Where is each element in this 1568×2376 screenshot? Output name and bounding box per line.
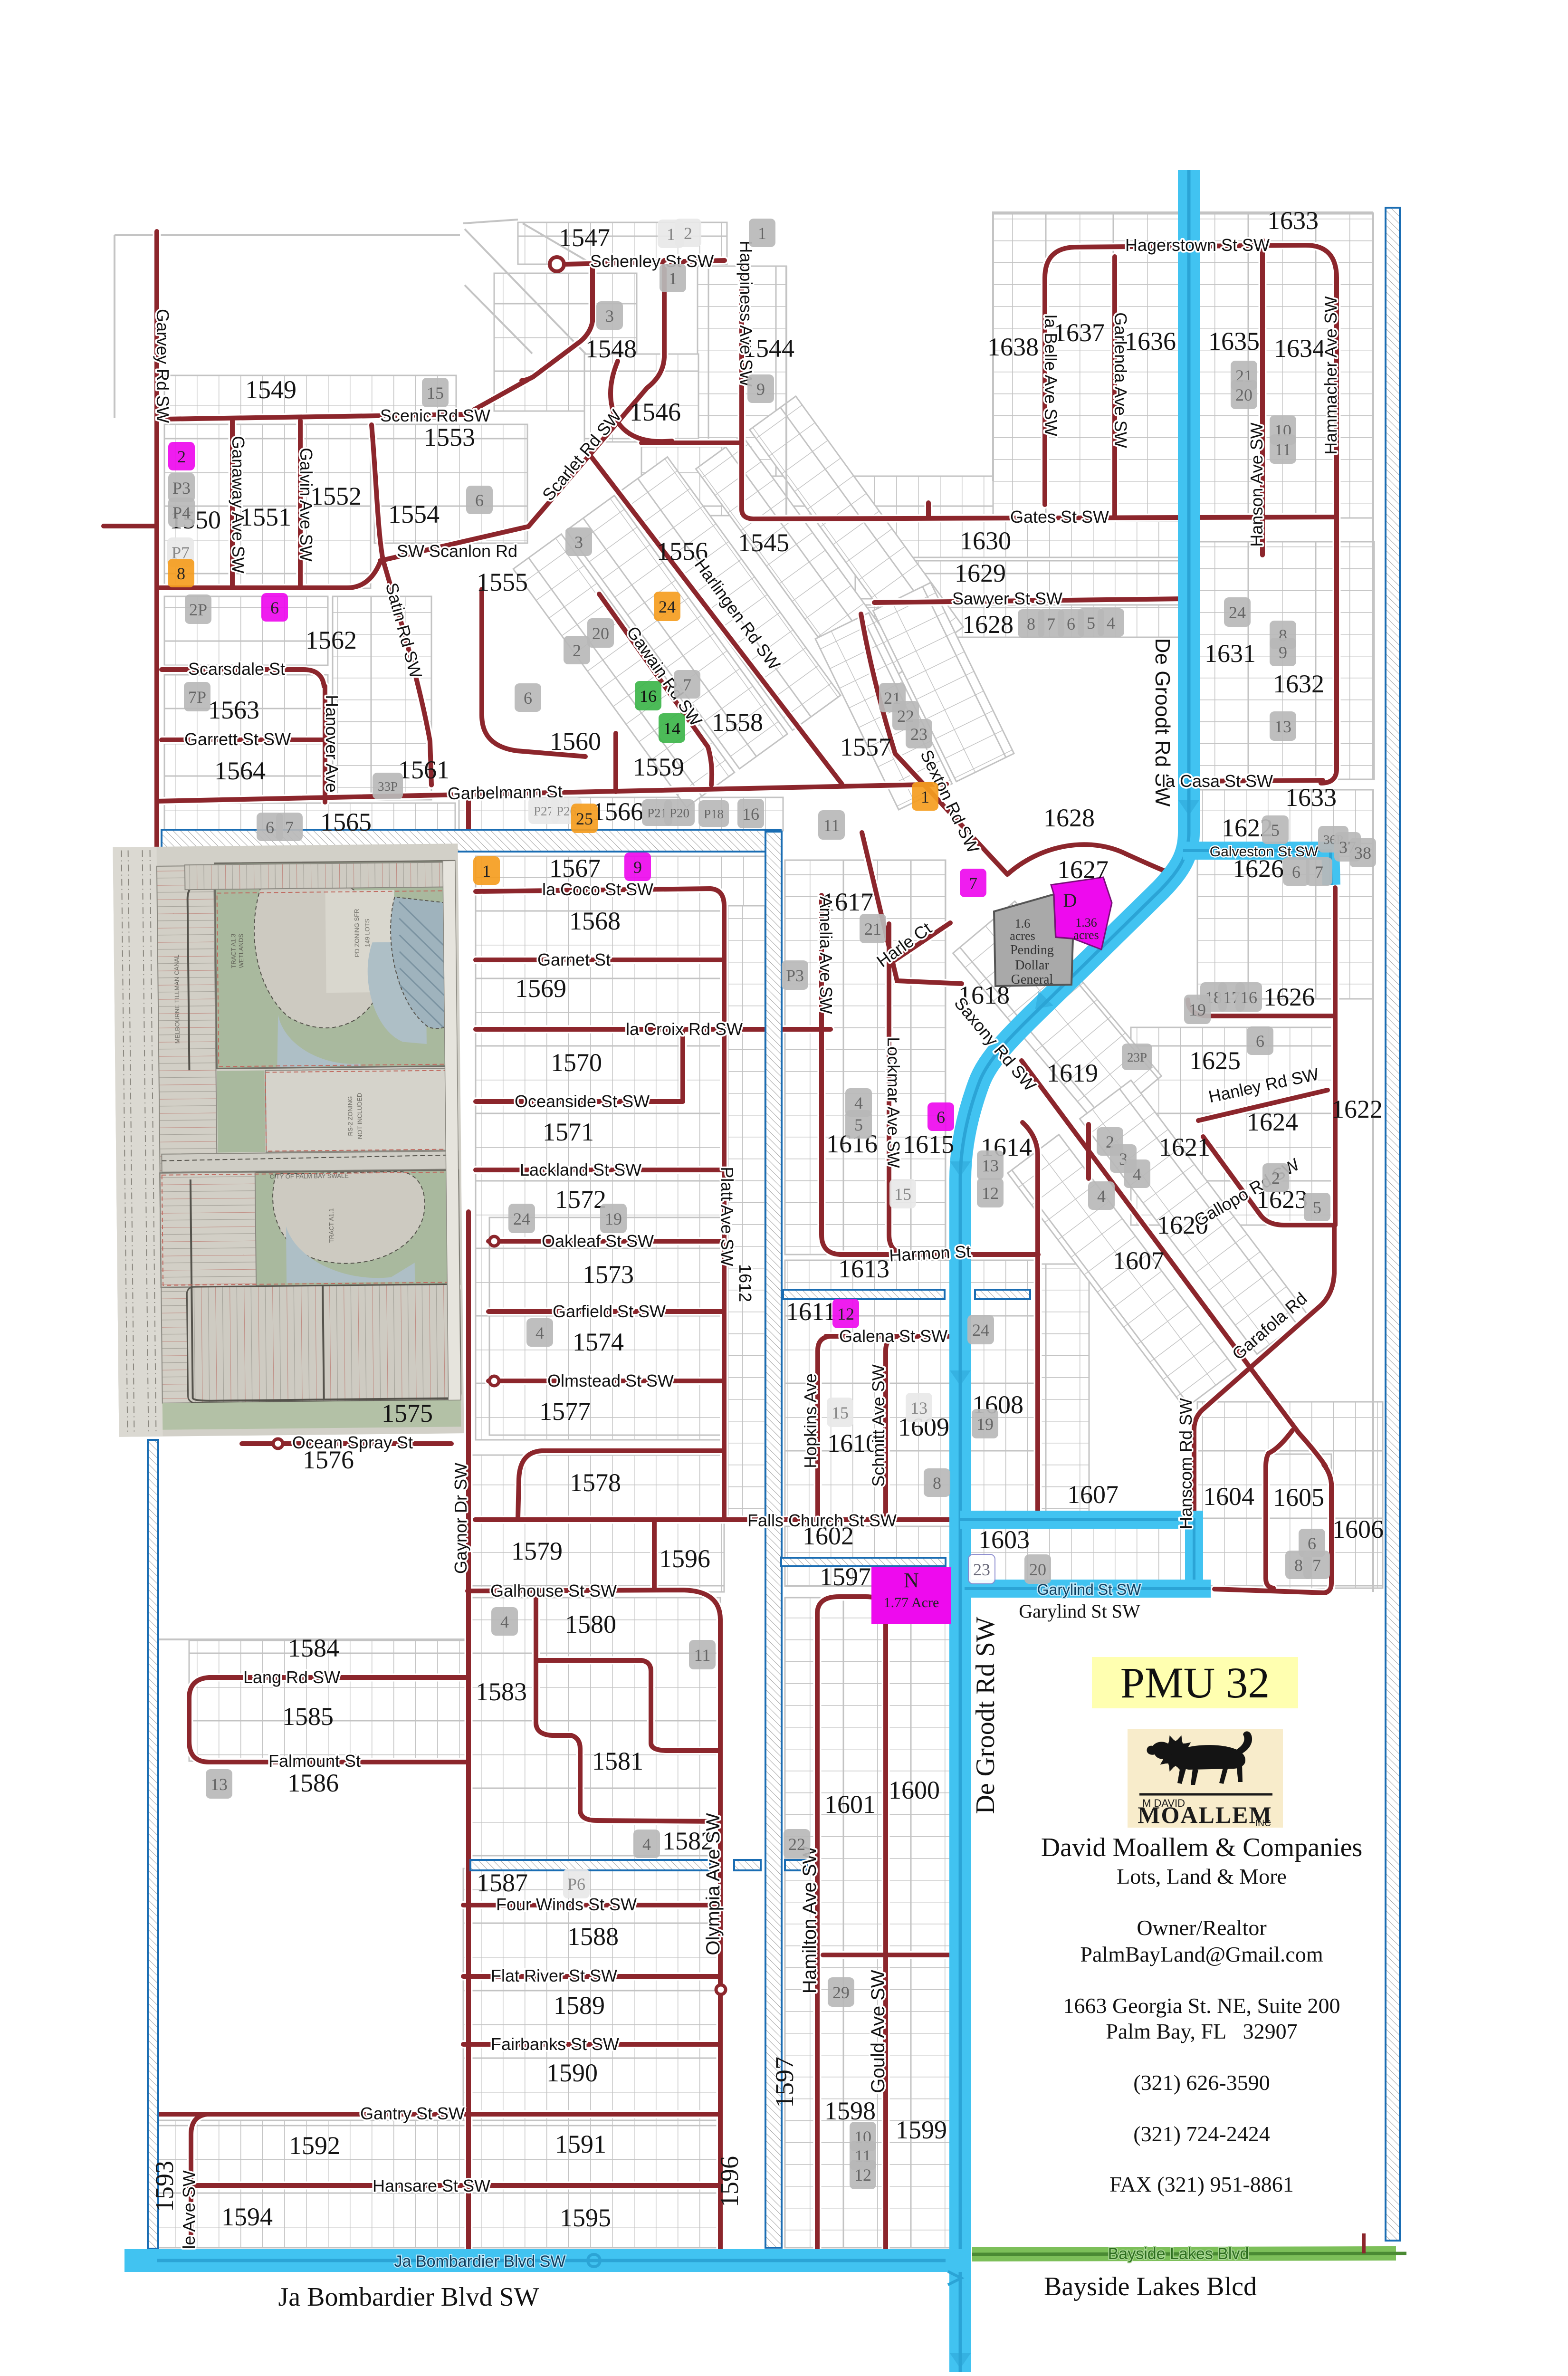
svg-text:Happiness Ave SW: Happiness Ave SW — [736, 240, 756, 387]
svg-text:1555: 1555 — [477, 568, 528, 596]
svg-text:Lockmar Ave SW: Lockmar Ave SW — [884, 1037, 903, 1168]
svg-text:Dollar: Dollar — [1015, 958, 1049, 973]
svg-text:1594: 1594 — [221, 2203, 273, 2231]
svg-text:1607: 1607 — [1067, 1480, 1119, 1509]
svg-text:1567: 1567 — [549, 854, 601, 882]
svg-text:Ganaway Ave SW: Ganaway Ave SW — [229, 436, 248, 573]
svg-text:1607: 1607 — [1113, 1246, 1164, 1275]
svg-text:la Belle Ave SW: la Belle Ave SW — [1041, 315, 1061, 436]
svg-text:1595: 1595 — [560, 2204, 611, 2232]
svg-text:1579: 1579 — [511, 1537, 563, 1565]
svg-text:1583: 1583 — [476, 1677, 527, 1706]
svg-text:(321) 626-3590: (321) 626-3590 — [1133, 2070, 1270, 2095]
svg-text:6: 6 — [1256, 1032, 1264, 1051]
svg-text:1.77 Acre: 1.77 Acre — [884, 1595, 939, 1610]
svg-text:1574: 1574 — [573, 1328, 624, 1356]
svg-text:11: 11 — [823, 816, 840, 835]
svg-text:1548: 1548 — [585, 335, 637, 363]
svg-text:D: D — [1063, 890, 1077, 911]
svg-text:1572: 1572 — [555, 1185, 606, 1214]
svg-text:P3: P3 — [172, 479, 191, 498]
svg-text:Hammacher Ave SW: Hammacher Ave SW — [1321, 296, 1340, 454]
svg-text:1637: 1637 — [1053, 318, 1105, 347]
svg-text:INC: INC — [1255, 1819, 1271, 1829]
svg-text:6: 6 — [1308, 1534, 1316, 1553]
svg-text:1593: 1593 — [150, 2161, 179, 2212]
svg-text:Olmstead St SW: Olmstead St SW — [547, 1371, 674, 1390]
svg-text:1604: 1604 — [1203, 1482, 1254, 1511]
svg-text:1588: 1588 — [567, 1922, 619, 1951]
svg-text:Hagerstown St SW: Hagerstown St SW — [1125, 235, 1270, 255]
svg-text:5: 5 — [1087, 613, 1095, 632]
svg-text:CITY OF PALM BAY SWALE: CITY OF PALM BAY SWALE — [270, 1172, 349, 1180]
svg-text:Garfield St SW: Garfield St SW — [553, 1302, 666, 1321]
svg-text:TRACT A1.3: TRACT A1.3 — [229, 934, 237, 968]
svg-text:1569: 1569 — [515, 974, 566, 1003]
svg-text:2: 2 — [573, 641, 581, 660]
svg-text:7: 7 — [683, 675, 691, 694]
svg-text:1629: 1629 — [955, 559, 1006, 587]
svg-text:General: General — [1011, 972, 1053, 987]
svg-text:1598: 1598 — [824, 2097, 876, 2125]
svg-text:13: 13 — [1274, 717, 1291, 736]
svg-text:Amelia Ave SW: Amelia Ave SW — [816, 896, 836, 1014]
svg-text:19: 19 — [605, 1209, 622, 1228]
svg-text:Platt Ave SW: Platt Ave SW — [717, 1167, 737, 1266]
svg-text:Galvin Ave SW: Galvin Ave SW — [296, 448, 316, 561]
svg-text:P21: P21 — [647, 806, 667, 820]
svg-text:1601: 1601 — [824, 1790, 876, 1819]
svg-text:1: 1 — [667, 225, 675, 244]
svg-text:Garlenda Ave SW: Garlenda Ave SW — [1111, 312, 1130, 448]
svg-text:5: 5 — [854, 1115, 863, 1134]
svg-text:13: 13 — [210, 1775, 228, 1794]
svg-text:1559: 1559 — [633, 753, 684, 781]
svg-text:1626: 1626 — [1263, 983, 1315, 1011]
svg-text:1565: 1565 — [320, 808, 372, 836]
svg-text:1562: 1562 — [306, 626, 357, 654]
svg-text:P27: P27 — [534, 804, 554, 818]
svg-text:13: 13 — [982, 1156, 999, 1175]
svg-text:Owner/Realtor: Owner/Realtor — [1137, 1916, 1266, 1940]
svg-text:1558: 1558 — [712, 708, 763, 737]
svg-text:9: 9 — [756, 380, 765, 399]
svg-text:1.36: 1.36 — [1075, 916, 1097, 929]
svg-text:1590: 1590 — [546, 2059, 598, 2087]
svg-text:23: 23 — [910, 725, 927, 744]
svg-text:Galena St SW: Galena St SW — [839, 1326, 947, 1346]
svg-text:PMU 32: PMU 32 — [1120, 1658, 1270, 1707]
svg-text:FAX (321) 951-8861: FAX (321) 951-8861 — [1109, 2172, 1294, 2196]
svg-text:Oakleaf St SW: Oakleaf St SW — [542, 1231, 654, 1251]
svg-text:PalmBayLand@Gmail.com: PalmBayLand@Gmail.com — [1080, 1942, 1323, 1966]
svg-text:8: 8 — [177, 564, 185, 583]
svg-text:Garrett St SW: Garrett St SW — [184, 729, 291, 749]
svg-text:6: 6 — [937, 1108, 945, 1127]
svg-text:1: 1 — [669, 269, 677, 288]
svg-text:5: 5 — [1271, 821, 1280, 840]
svg-text:1633: 1633 — [1267, 206, 1319, 235]
svg-text:24: 24 — [972, 1321, 989, 1340]
svg-text:3: 3 — [574, 533, 583, 552]
svg-text:1630: 1630 — [960, 527, 1011, 555]
svg-text:Hamilton Ave SW: Hamilton Ave SW — [799, 1846, 820, 1994]
svg-text:1635: 1635 — [1208, 327, 1260, 355]
svg-text:24: 24 — [659, 597, 676, 616]
svg-text:2P: 2P — [189, 600, 207, 619]
svg-text:Hanson Ave SW: Hanson Ave SW — [1247, 422, 1266, 546]
svg-text:1581: 1581 — [592, 1747, 643, 1775]
svg-text:1627: 1627 — [1057, 855, 1109, 884]
svg-text:19: 19 — [976, 1415, 994, 1434]
svg-text:1553: 1553 — [424, 423, 475, 451]
svg-text:16: 16 — [742, 805, 759, 824]
svg-text:2: 2 — [1272, 1169, 1280, 1188]
svg-text:11: 11 — [694, 1646, 711, 1665]
svg-text:1605: 1605 — [1273, 1483, 1324, 1512]
svg-text:4: 4 — [854, 1093, 863, 1112]
svg-text:7: 7 — [969, 874, 977, 893]
svg-text:P4: P4 — [172, 503, 191, 522]
svg-text:acres: acres — [1010, 929, 1035, 943]
svg-text:Gates St SW: Gates St SW — [1010, 507, 1109, 527]
svg-text:1603: 1603 — [978, 1525, 1030, 1554]
svg-text:1564: 1564 — [214, 757, 266, 785]
svg-text:7: 7 — [285, 818, 294, 837]
svg-text:2: 2 — [684, 224, 692, 243]
svg-text:1619: 1619 — [1047, 1059, 1098, 1087]
svg-text:Flat River St SW: Flat River St SW — [491, 1966, 617, 1985]
svg-text:Falls Church St SW: Falls Church St SW — [747, 1511, 897, 1530]
svg-text:19: 19 — [1189, 1000, 1206, 1019]
svg-text:1573: 1573 — [583, 1260, 634, 1289]
svg-text:la Coco St SW: la Coco St SW — [542, 880, 653, 899]
svg-text:Sawyer St SW: Sawyer St SW — [952, 589, 1062, 608]
svg-text:De Groodt Rd SW: De Groodt Rd SW — [971, 1617, 1000, 1814]
svg-text:David Moallem & Companies: David Moallem & Companies — [1041, 1833, 1363, 1862]
svg-text:16: 16 — [1240, 988, 1257, 1007]
svg-text:Garnet St: Garnet St — [537, 950, 611, 969]
svg-text:1578: 1578 — [570, 1468, 621, 1497]
svg-text:4: 4 — [1133, 1165, 1141, 1184]
svg-text:Olympia Ave SW: Olympia Ave SW — [703, 1813, 724, 1955]
svg-text:9: 9 — [1279, 643, 1287, 662]
svg-text:1606: 1606 — [1332, 1515, 1384, 1543]
svg-text:1577: 1577 — [539, 1397, 591, 1426]
svg-text:1580: 1580 — [565, 1610, 616, 1638]
svg-text:1563: 1563 — [208, 696, 259, 724]
svg-text:1585: 1585 — [282, 1702, 334, 1731]
svg-text:14: 14 — [663, 719, 680, 738]
svg-text:TRACT A1.1: TRACT A1.1 — [327, 1208, 335, 1243]
svg-text:13: 13 — [910, 1399, 927, 1418]
svg-text:20: 20 — [592, 624, 609, 643]
svg-text:1557: 1557 — [840, 733, 891, 761]
svg-text:Pending: Pending — [1010, 943, 1054, 958]
svg-text:1622: 1622 — [1331, 1095, 1383, 1123]
svg-text:1612: 1612 — [736, 1264, 755, 1302]
svg-text:15: 15 — [427, 383, 444, 402]
svg-text:1554: 1554 — [388, 500, 440, 528]
svg-text:1634: 1634 — [1274, 334, 1325, 363]
svg-text:1636: 1636 — [1125, 327, 1176, 355]
svg-text:25: 25 — [576, 809, 593, 828]
svg-text:5: 5 — [1313, 1198, 1321, 1217]
svg-text:1611: 1611 — [786, 1297, 836, 1326]
svg-text:Schenley St SW: Schenley St SW — [590, 251, 714, 271]
svg-text:1615: 1615 — [903, 1130, 954, 1159]
svg-text:23P: 23P — [1127, 1050, 1147, 1064]
svg-text:PD ZONING SFR: PD ZONING SFR — [353, 909, 361, 957]
svg-text:4: 4 — [500, 1612, 509, 1631]
svg-text:1547: 1547 — [559, 223, 610, 252]
svg-text:8: 8 — [933, 1474, 941, 1493]
svg-text:6: 6 — [1292, 862, 1300, 881]
svg-text:29: 29 — [832, 1983, 850, 2002]
svg-text:MELBOURNE TILLMAN CANAL: MELBOURNE TILLMAN CANAL — [173, 955, 181, 1044]
svg-text:Hopkins Ave: Hopkins Ave — [801, 1373, 820, 1468]
svg-text:8: 8 — [1294, 1556, 1303, 1575]
svg-text:1586: 1586 — [287, 1769, 339, 1797]
svg-text:4: 4 — [535, 1323, 544, 1342]
svg-text:1597: 1597 — [820, 1562, 871, 1591]
svg-text:1: 1 — [482, 862, 491, 881]
svg-text:1560: 1560 — [550, 727, 601, 756]
svg-text:20: 20 — [1235, 385, 1252, 404]
svg-text:1628: 1628 — [1043, 804, 1095, 832]
svg-text:WETLANDS: WETLANDS — [237, 934, 245, 968]
svg-text:Garylind St SW: Garylind St SW — [1037, 1581, 1142, 1598]
svg-text:Galhouse St SW: Galhouse St SW — [490, 1581, 617, 1600]
svg-text:1632: 1632 — [1273, 670, 1324, 698]
svg-text:22: 22 — [788, 1835, 805, 1854]
svg-text:1592: 1592 — [289, 2131, 340, 2160]
svg-text:Palm Bay, FL 32907: Palm Bay, FL 32907 — [1106, 2019, 1297, 2043]
svg-text:7: 7 — [1315, 862, 1323, 881]
svg-text:1663 Georgia St. NE, Suite 200: 1663 Georgia St. NE, Suite 200 — [1063, 1993, 1340, 2018]
svg-text:7: 7 — [1047, 614, 1055, 633]
svg-text:7: 7 — [1312, 1556, 1321, 1575]
svg-text:3: 3 — [605, 307, 614, 326]
svg-text:4: 4 — [1107, 613, 1115, 632]
svg-text:6: 6 — [270, 598, 279, 617]
svg-text:6: 6 — [475, 491, 484, 510]
svg-text:24: 24 — [513, 1209, 530, 1228]
svg-text:P18: P18 — [704, 807, 724, 821]
svg-text:Hanscom Rd SW: Hanscom Rd SW — [1176, 1398, 1195, 1529]
svg-text:1: 1 — [921, 787, 929, 806]
svg-text:1570: 1570 — [551, 1048, 602, 1077]
svg-text:1597: 1597 — [770, 2057, 799, 2108]
svg-text:23: 23 — [973, 1560, 990, 1579]
svg-text:149 LOTS: 149 LOTS — [363, 919, 371, 947]
svg-text:1587: 1587 — [477, 1868, 528, 1897]
svg-text:1599: 1599 — [896, 2116, 947, 2144]
svg-text:15: 15 — [894, 1185, 911, 1204]
svg-text:1.6: 1.6 — [1015, 917, 1031, 930]
svg-text:9: 9 — [633, 858, 642, 877]
svg-text:Oceanside St SW: Oceanside St SW — [515, 1092, 650, 1111]
svg-text:Ja Bombardier Blvd SW: Ja Bombardier Blvd SW — [394, 2252, 566, 2271]
svg-text:acres: acres — [1073, 928, 1099, 942]
svg-text:1568: 1568 — [569, 907, 621, 935]
svg-text:33P: 33P — [378, 779, 398, 794]
svg-text:1591: 1591 — [555, 2130, 606, 2158]
svg-text:la Casa St SW: la Casa St SW — [1162, 771, 1273, 791]
svg-text:N: N — [904, 1569, 919, 1592]
svg-text:Gantry St SW: Gantry St SW — [360, 2104, 465, 2123]
svg-text:1638: 1638 — [987, 333, 1039, 361]
svg-text:Garylind St SW: Garylind St SW — [1019, 1600, 1140, 1622]
svg-text:NOT INCLUDED: NOT INCLUDED — [356, 1093, 363, 1139]
svg-text:P3: P3 — [786, 966, 804, 985]
svg-text:15: 15 — [832, 1403, 849, 1422]
svg-text:6: 6 — [266, 818, 274, 837]
svg-text:Lots, Land & More: Lots, Land & More — [1117, 1864, 1287, 1888]
svg-text:Bayside Lakes Blcd: Bayside Lakes Blcd — [1044, 2272, 1257, 2301]
svg-text:1561: 1561 — [398, 756, 449, 784]
svg-text:Lackland St SW: Lackland St SW — [520, 1160, 641, 1179]
svg-text:1633: 1633 — [1285, 783, 1337, 812]
svg-text:38: 38 — [1354, 843, 1371, 862]
svg-text:Hanover Ave: Hanover Ave — [322, 695, 342, 792]
svg-text:24: 24 — [1229, 603, 1246, 622]
svg-text:Scenic Rd SW: Scenic Rd SW — [380, 406, 490, 425]
svg-text:1596: 1596 — [659, 1544, 710, 1573]
svg-text:11: 11 — [1275, 440, 1291, 459]
svg-text:1628: 1628 — [962, 610, 1013, 639]
svg-text:2: 2 — [177, 447, 186, 466]
svg-text:1575: 1575 — [382, 1399, 433, 1428]
svg-text:8: 8 — [1027, 614, 1035, 633]
svg-text:Garvey Rd SW: Garvey Rd SW — [153, 309, 172, 423]
svg-text:1624: 1624 — [1247, 1108, 1298, 1136]
svg-text:la Croix Rd SW: la Croix Rd SW — [626, 1019, 743, 1039]
svg-text:6: 6 — [524, 689, 532, 708]
svg-text:P20: P20 — [669, 806, 689, 820]
svg-text:6: 6 — [1067, 614, 1075, 633]
svg-text:le Ave SW: le Ave SW — [179, 2170, 199, 2249]
svg-text:1584: 1584 — [288, 1634, 339, 1662]
svg-text:1566: 1566 — [592, 797, 643, 826]
svg-text:Falmount St: Falmount St — [268, 1751, 361, 1771]
svg-text:12: 12 — [854, 2165, 871, 2184]
svg-text:1600: 1600 — [889, 1776, 940, 1804]
svg-text:1546: 1546 — [630, 398, 681, 426]
svg-text:Ocean Spray St: Ocean Spray St — [292, 1433, 413, 1452]
svg-text:RS-2 ZONING: RS-2 ZONING — [346, 1096, 354, 1136]
svg-text:16: 16 — [640, 687, 657, 706]
svg-text:SW Scanlon Rd: SW Scanlon Rd — [397, 541, 517, 561]
svg-text:1571: 1571 — [543, 1118, 594, 1146]
svg-text:Scarsdale St: Scarsdale St — [188, 659, 285, 679]
svg-text:Gould Ave SW: Gould Ave SW — [868, 1970, 889, 2093]
svg-text:Schmitt Ave SW: Schmitt Ave SW — [869, 1364, 888, 1486]
svg-text:1545: 1545 — [738, 528, 789, 557]
svg-text:Ja Bombardier Blvd SW: Ja Bombardier Blvd SW — [278, 2282, 539, 2312]
svg-text:1613: 1613 — [838, 1255, 889, 1283]
svg-text:Hansare St SW: Hansare St SW — [373, 2176, 490, 2195]
svg-text:1549: 1549 — [245, 375, 296, 404]
svg-text:4: 4 — [1097, 1187, 1106, 1206]
svg-text:12: 12 — [982, 1184, 999, 1203]
svg-text:4: 4 — [642, 1835, 651, 1854]
svg-text:21: 21 — [864, 920, 881, 939]
svg-text:1621: 1621 — [1159, 1133, 1210, 1161]
svg-text:1625: 1625 — [1189, 1046, 1241, 1075]
svg-text:1: 1 — [758, 224, 766, 243]
svg-text:1631: 1631 — [1205, 639, 1256, 668]
svg-text:Gaynor Dr SW: Gaynor Dr SW — [451, 1463, 470, 1574]
svg-text:Lang Rd SW: Lang Rd SW — [243, 1667, 340, 1687]
svg-text:1552: 1552 — [310, 482, 362, 510]
svg-text:1596: 1596 — [715, 2156, 744, 2207]
svg-text:Bayside Lakes Blvd: Bayside Lakes Blvd — [1108, 2245, 1249, 2263]
svg-text:12: 12 — [837, 1304, 854, 1323]
svg-text:7P: 7P — [188, 688, 206, 707]
svg-text:(321) 724-2424: (321) 724-2424 — [1133, 2122, 1270, 2146]
svg-text:20: 20 — [1029, 1560, 1046, 1579]
svg-text:Fairbanks St SW: Fairbanks St SW — [491, 2034, 619, 2054]
svg-text:P6: P6 — [567, 1875, 585, 1894]
svg-text:MOALLEM: MOALLEM — [1138, 1801, 1272, 1828]
svg-text:1589: 1589 — [554, 1991, 605, 2020]
